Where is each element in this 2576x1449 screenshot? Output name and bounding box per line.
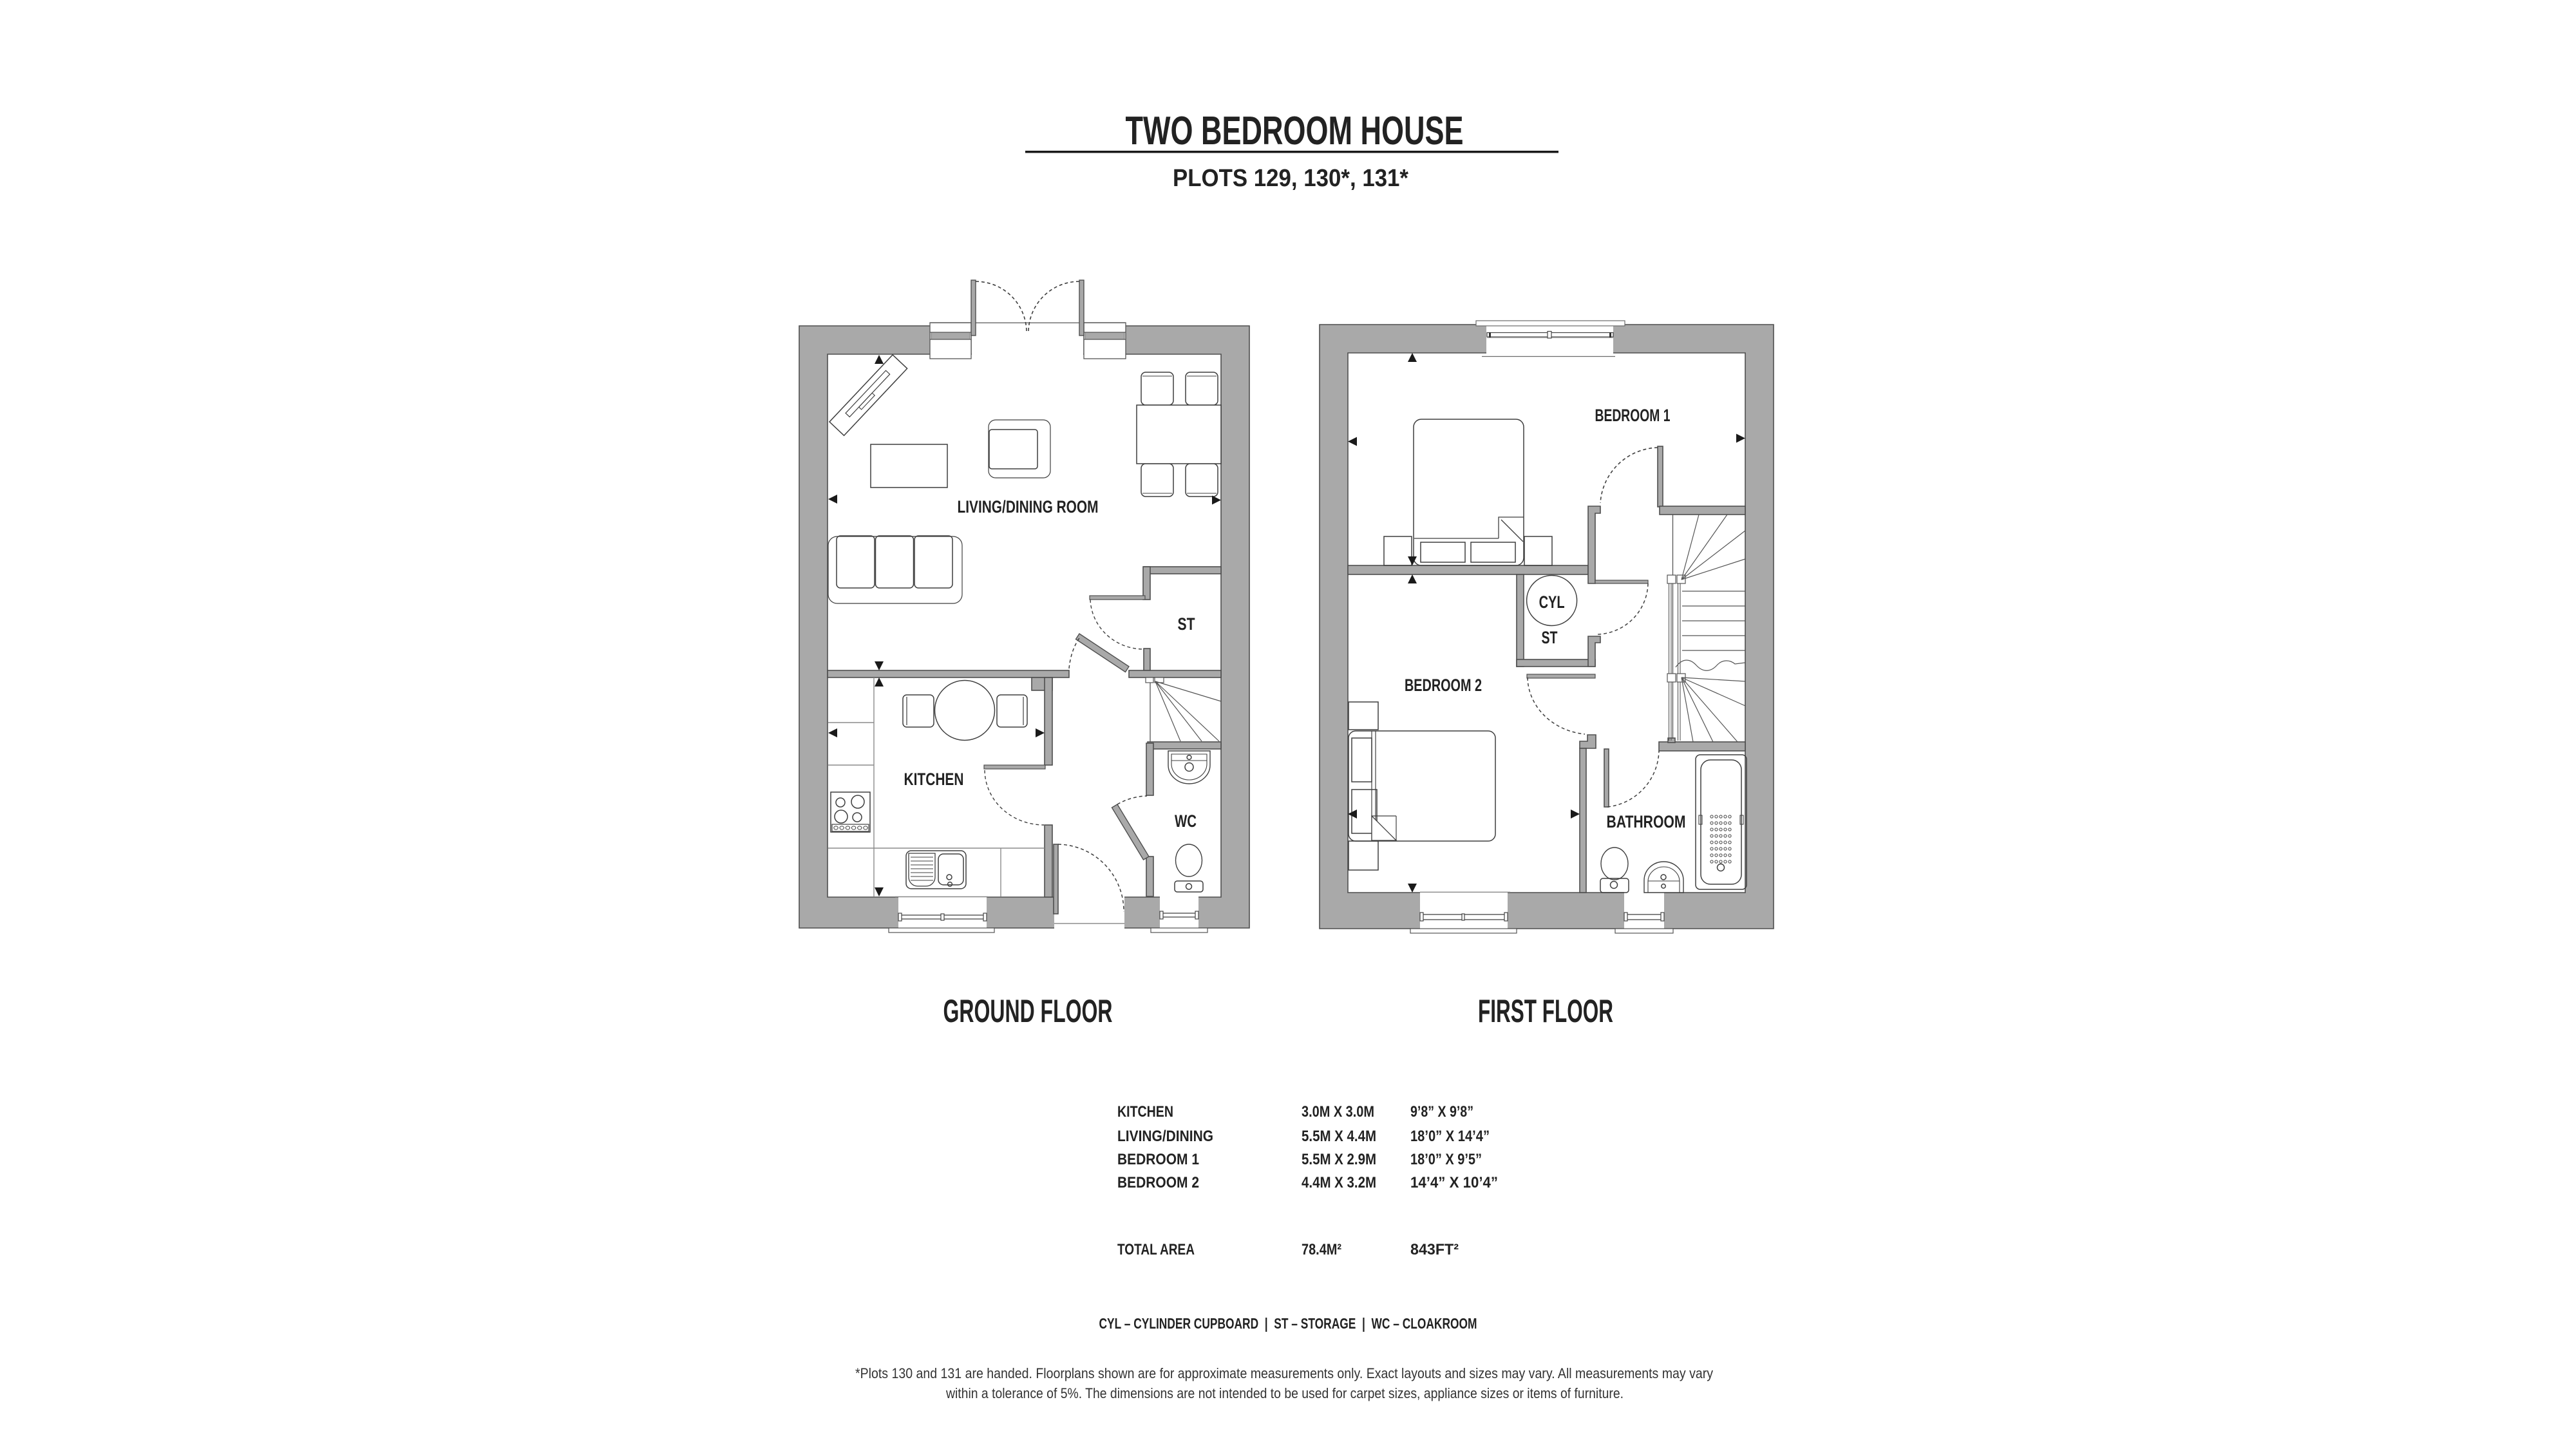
svg-text:78.4M²: 78.4M²: [1302, 1241, 1341, 1258]
svg-text:KITCHEN: KITCHEN: [1117, 1103, 1173, 1121]
svg-text:BEDROOM 2: BEDROOM 2: [1405, 676, 1482, 695]
svg-text:GROUND FLOOR: GROUND FLOOR: [943, 993, 1113, 1029]
svg-text:ST: ST: [1542, 628, 1558, 647]
svg-text:18’0” X 14’4”: 18’0” X 14’4”: [1410, 1128, 1490, 1145]
svg-text:5.5M X 2.9M: 5.5M X 2.9M: [1302, 1151, 1376, 1168]
svg-text:within a tolerance of 5%. The: within a tolerance of 5%. The dimensions…: [945, 1385, 1624, 1401]
svg-text:*Plots 130 and 131 are handed.: *Plots 130 and 131 are handed. Floorplan…: [855, 1365, 1713, 1381]
svg-text:5.5M X 4.4M: 5.5M X 4.4M: [1302, 1128, 1376, 1145]
svg-text:9’8” X 9’8”: 9’8” X 9’8”: [1410, 1103, 1473, 1121]
svg-text:CYL – CYLINDER CUPBOARD | ST: CYL – CYLINDER CUPBOARD | ST – STORAGE |…: [1099, 1315, 1477, 1332]
svg-text:BEDROOM 1: BEDROOM 1: [1595, 406, 1671, 425]
svg-text:18’0” X 9’5”: 18’0” X 9’5”: [1410, 1151, 1482, 1168]
svg-text:LIVING/DINING ROOM: LIVING/DINING ROOM: [958, 497, 1099, 516]
svg-text:BATHROOM: BATHROOM: [1607, 812, 1686, 831]
svg-text:4.4M X 3.2M: 4.4M X 3.2M: [1302, 1174, 1376, 1191]
svg-text:KITCHEN: KITCHEN: [904, 770, 964, 789]
svg-text:TWO BEDROOM HOUSE: TWO BEDROOM HOUSE: [1126, 109, 1464, 153]
svg-text:WC: WC: [1175, 811, 1197, 831]
svg-text:BEDROOM 1: BEDROOM 1: [1117, 1151, 1199, 1168]
svg-text:LIVING/DINING: LIVING/DINING: [1117, 1128, 1213, 1145]
svg-text:14’4” X 10’4”: 14’4” X 10’4”: [1410, 1174, 1498, 1191]
svg-text:3.0M X 3.0M: 3.0M X 3.0M: [1302, 1103, 1374, 1121]
svg-text:ST: ST: [1178, 614, 1195, 634]
svg-text:843FT²: 843FT²: [1410, 1241, 1459, 1258]
svg-text:BEDROOM 2: BEDROOM 2: [1117, 1174, 1199, 1191]
svg-text:PLOTS 129, 130*, 131*: PLOTS 129, 130*, 131*: [1173, 165, 1408, 192]
svg-text:FIRST FLOOR: FIRST FLOOR: [1478, 993, 1613, 1029]
svg-text:TOTAL AREA: TOTAL AREA: [1117, 1241, 1195, 1258]
svg-text:CYL: CYL: [1539, 592, 1565, 612]
